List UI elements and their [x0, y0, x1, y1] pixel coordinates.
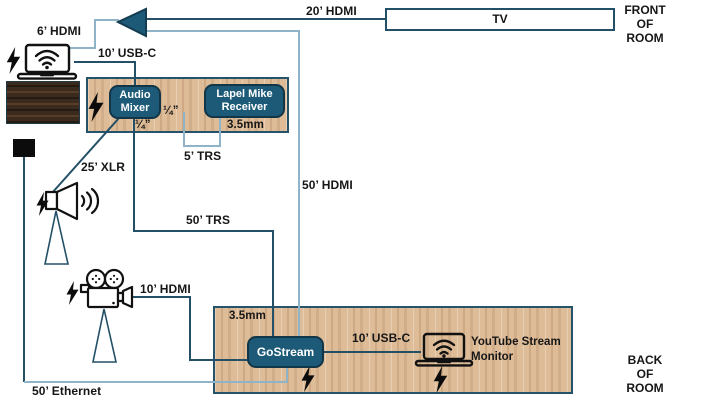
- laptop-icon: [18, 45, 76, 79]
- audio-mixer-label: Mixer: [121, 102, 150, 115]
- label-quarter-inch-below: ¼”: [135, 119, 151, 131]
- camera-tripod-icon: [93, 309, 116, 362]
- dark-wood-surface: [6, 81, 80, 124]
- lapel-mike-receiver-label: Lapel Mike: [216, 88, 272, 101]
- speaker-tripod-icon: [45, 211, 68, 264]
- label-10ft-hdmi-camera: 10’ HDMI: [140, 282, 191, 296]
- network-jack: [13, 139, 35, 157]
- tv-box: TV: [385, 8, 615, 31]
- label-6ft-hdmi: 6’ HDMI: [37, 24, 81, 38]
- label-3-5mm-receiver: 3.5mm: [227, 119, 264, 131]
- video-camera-icon: [81, 270, 132, 307]
- front-of-room-label: FRONT OF ROOM: [618, 3, 672, 45]
- label-5ft-trs: 5’ TRS: [184, 149, 221, 163]
- label-50ft-trs: 50’ TRS: [186, 213, 230, 227]
- power-bolt-icon: [67, 281, 79, 305]
- label-20ft-hdmi: 20’ HDMI: [306, 4, 357, 18]
- lapel-mike-receiver-box: Lapel Mike Receiver: [204, 84, 285, 118]
- label-10ft-usb-c-monitor: 10’ USB-C: [352, 331, 410, 345]
- label-quarter-inch-right: ¼”: [163, 105, 179, 117]
- label-25ft-xlr: 25’ XLR: [81, 160, 125, 174]
- speaker-icon: [46, 183, 98, 219]
- lapel-mike-receiver-label: Receiver: [222, 101, 268, 114]
- power-bolt-icon: [7, 47, 21, 74]
- label-50ft-hdmi: 50’ HDMI: [302, 178, 353, 192]
- audio-mixer-box: Audio Mixer: [109, 85, 161, 119]
- power-bolt-icon: [37, 192, 49, 216]
- label-3-5mm-gostream: 3.5mm: [229, 310, 266, 322]
- youtube-stream-monitor-label: YouTube Stream Monitor: [471, 335, 561, 365]
- back-of-room-label: BACK OF ROOM: [618, 353, 672, 395]
- av-wiring-diagram: TV Audio Mixer Lapel Mike Receiver GoStr…: [0, 0, 720, 405]
- label-50ft-ethernet: 50’ Ethernet: [32, 384, 101, 398]
- projector-icon: [118, 9, 146, 36]
- gostream-label: GoStream: [257, 346, 314, 359]
- label-10ft-usb-c-mixer: 10’ USB-C: [98, 46, 156, 60]
- gostream-box: GoStream: [247, 336, 324, 368]
- audio-mixer-label: Audio: [119, 89, 150, 102]
